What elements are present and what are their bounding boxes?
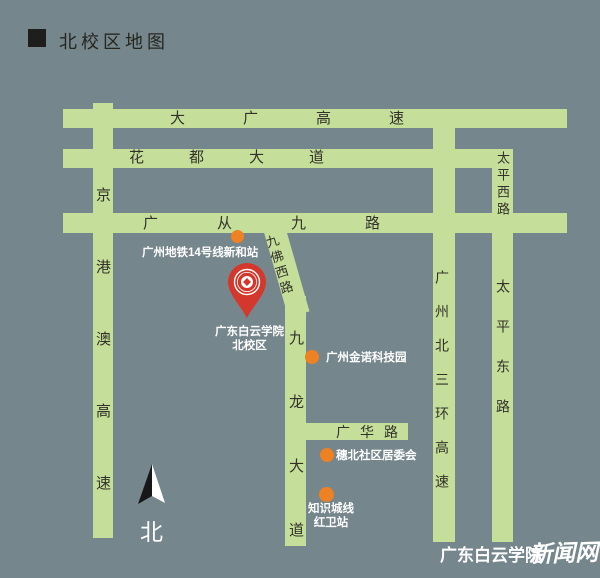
road-label-guanghua: 广华路 xyxy=(336,425,408,439)
title-square-icon xyxy=(28,29,46,47)
label-hongwei-station: 知识城线 红卫站 xyxy=(296,503,366,530)
road-label-taiping-west: 太平西路 xyxy=(496,151,509,219)
label-hongwei-station-name: 红卫站 xyxy=(296,517,366,531)
label-campus-name: 广东白云学院 xyxy=(204,326,295,340)
label-campus: 广东白云学院 北校区 xyxy=(204,326,295,353)
campus-location-pin-icon xyxy=(226,261,268,320)
road-label-guangcong: 广从九路 xyxy=(143,216,439,231)
road-label-huadu: 花都大道 xyxy=(129,150,369,165)
road-label-daguang: 大广高速 xyxy=(170,111,462,126)
road-label-north-third-ring: 广州北三环高速 xyxy=(435,270,449,508)
campus-map: 北校区地图 大广高速 花都大道 广从九路 广华路 京港澳高速 广州北三环高速 太… xyxy=(0,0,600,578)
marker-dot-jinnuo-park xyxy=(305,350,319,364)
road-label-jinggangao: 京港澳高速 xyxy=(95,187,110,547)
north-compass-icon xyxy=(134,460,168,506)
marker-dot-suibei-committee xyxy=(320,448,334,462)
label-metro-station: 广州地铁14号线新和站 xyxy=(142,247,258,261)
marker-dot-metro-station xyxy=(231,230,244,243)
label-jinnuo-park: 广州金诺科技园 xyxy=(326,352,407,366)
marker-dot-hongwei-station xyxy=(319,487,334,502)
compass-north-label: 北 xyxy=(140,513,163,547)
label-suibei-committee: 穗北社区居委会 xyxy=(336,450,417,464)
watermark-org: 广东白云学院 xyxy=(440,541,542,566)
watermark-site: 新闻网 xyxy=(528,533,598,569)
road-label-taiping-east: 太平东路 xyxy=(496,279,510,439)
page-title: 北校区地图 xyxy=(59,28,169,54)
label-campus-sub: 北校区 xyxy=(204,340,295,354)
road-label-jiulong: 九龙大道 xyxy=(288,330,303,578)
label-knowledge-city-line: 知识城线 xyxy=(296,503,366,517)
